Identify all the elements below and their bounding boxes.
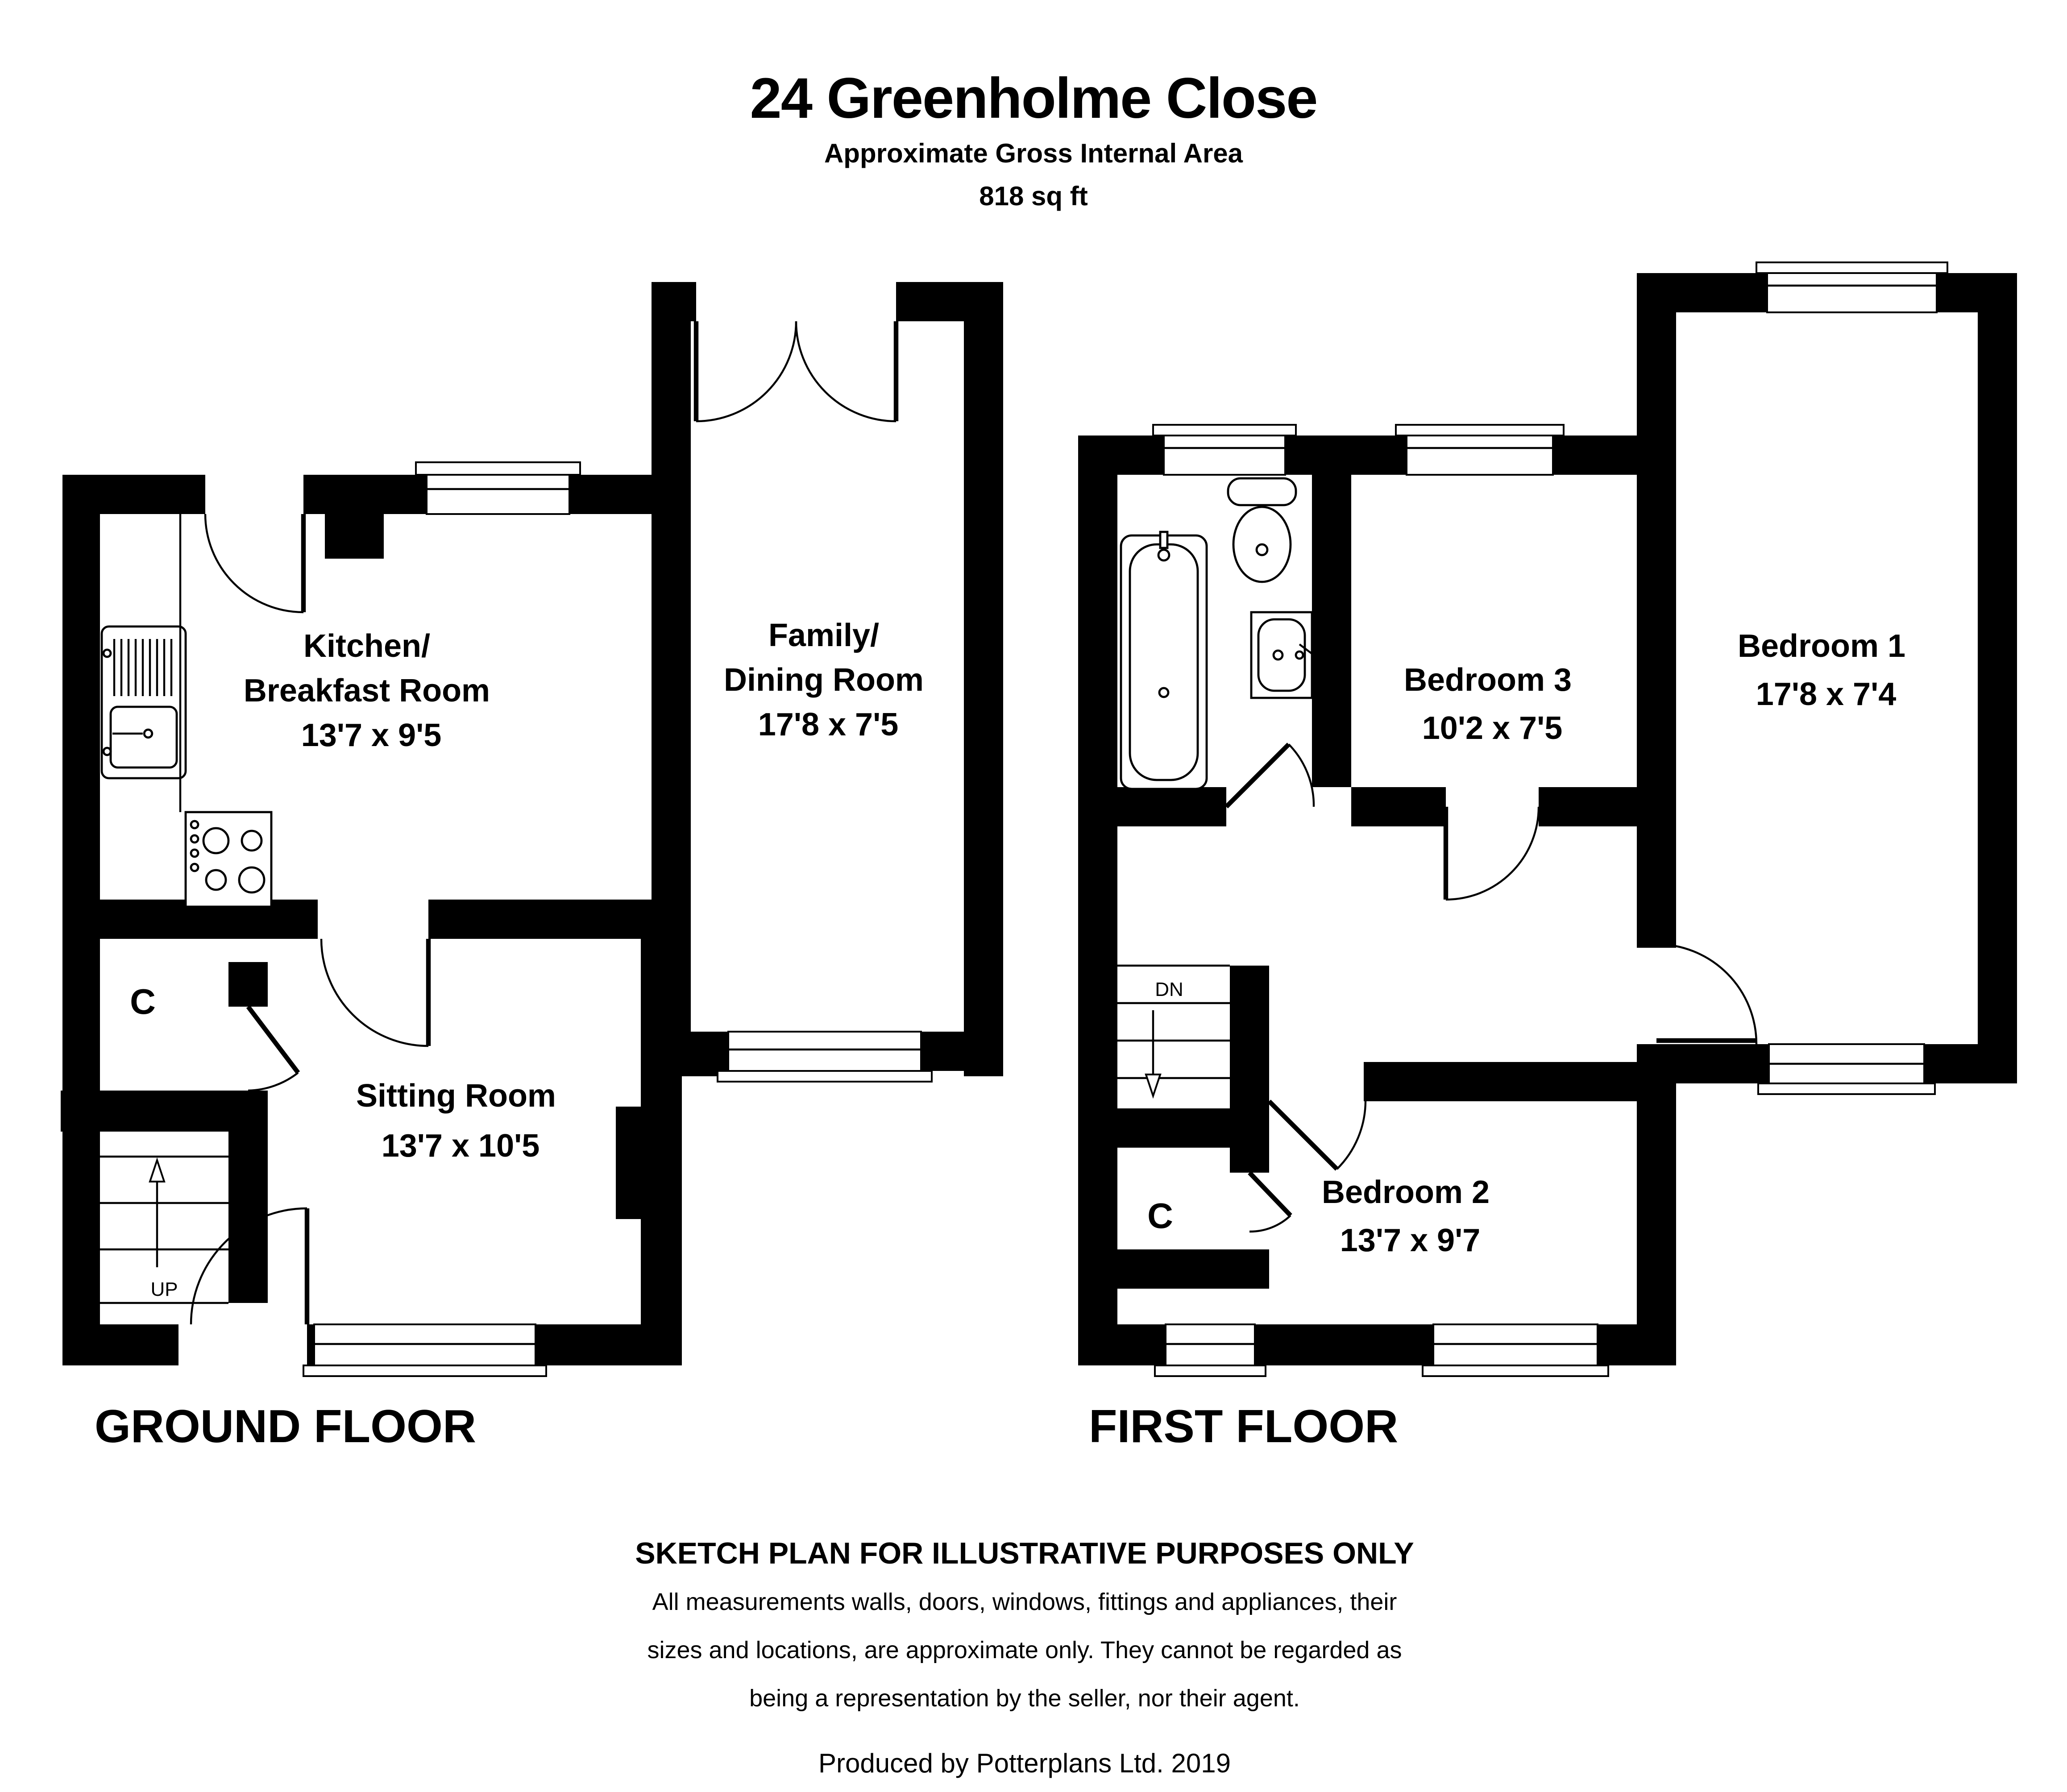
page-title: 24 Greenholme Close bbox=[750, 66, 1317, 130]
disclaimer-line3: being a representation by the seller, no… bbox=[749, 1685, 1300, 1712]
area-value: 818 sq ft bbox=[979, 181, 1087, 211]
bedroom1-door bbox=[1656, 944, 1756, 1044]
ground-floor-label: GROUND FLOOR bbox=[95, 1401, 476, 1452]
disclaimer-line1: All measurements walls, doors, windows, … bbox=[652, 1589, 1397, 1615]
page-subtitle: Approximate Gross Internal Area bbox=[824, 138, 1243, 168]
sitting-room-label: Sitting Room 13'7 x 10'5 bbox=[356, 1078, 565, 1164]
ground-closet-label: C bbox=[130, 982, 156, 1021]
bedroom3-window bbox=[1396, 425, 1564, 475]
first-floor-label: FIRST FLOOR bbox=[1089, 1401, 1398, 1452]
stairs-up: UP bbox=[100, 1157, 228, 1303]
bedroom2-left-window bbox=[1155, 1324, 1266, 1376]
bedroom1-bottom-window bbox=[1758, 1044, 1935, 1094]
disclaimer-title: SKETCH PLAN FOR ILLUSTRATIVE PURPOSES ON… bbox=[635, 1536, 1414, 1570]
stairs-down: DN bbox=[1117, 966, 1230, 1096]
chimney-breast bbox=[616, 1107, 641, 1219]
disclaimer-line2: sizes and locations, are approximate onl… bbox=[647, 1637, 1402, 1663]
bedroom3-door bbox=[1446, 807, 1539, 900]
bathroom-window bbox=[1153, 425, 1296, 475]
header: 24 Greenholme Close Approximate Gross In… bbox=[750, 66, 1317, 211]
stairs-up-label: UP bbox=[150, 1278, 178, 1300]
first-floor-plan: DN Bedroom 3 10'2 x 7'5 Bedro bbox=[1078, 262, 2017, 1452]
credit-line: Produced by Potterplans Ltd. 2019 bbox=[818, 1748, 1231, 1778]
bedroom1-top-window bbox=[1756, 262, 1947, 312]
basin-symbol bbox=[1251, 612, 1314, 698]
ground-floor-plan: UP bbox=[61, 282, 1003, 1452]
bathroom-door bbox=[1226, 744, 1314, 807]
dining-room-window bbox=[718, 1032, 932, 1082]
bedroom2-label: Bedroom 2 13'7 x 9'7 bbox=[1322, 1174, 1498, 1258]
up-arrow-icon bbox=[150, 1160, 164, 1182]
bedroom2-right-window bbox=[1423, 1324, 1608, 1376]
kitchen-sitting-door bbox=[321, 939, 428, 1046]
kitchen-sink-symbol bbox=[102, 626, 186, 778]
kitchen-label: Kitchen/ Breakfast Room 13'7 x 9'5 bbox=[244, 628, 499, 753]
footer: SKETCH PLAN FOR ILLUSTRATIVE PURPOSES ON… bbox=[635, 1536, 1414, 1778]
floorplan-page: 24 Greenholme Close Approximate Gross In… bbox=[0, 0, 2067, 1792]
bedroom1-label: Bedroom 1 17'8 x 7'4 bbox=[1738, 628, 1914, 712]
french-doors bbox=[696, 321, 896, 421]
kitchen-door bbox=[205, 514, 303, 612]
first-closet-label: C bbox=[1147, 1196, 1173, 1236]
toilet-symbol bbox=[1228, 478, 1296, 582]
dining-label: Family/ Dining Room 17'8 x 7'5 bbox=[724, 618, 933, 743]
ground-closet-door bbox=[248, 1007, 298, 1091]
bathtub-symbol bbox=[1121, 532, 1207, 789]
kitchen-window bbox=[416, 462, 580, 514]
down-arrow-icon bbox=[1146, 1074, 1160, 1096]
sitting-room-window bbox=[303, 1324, 546, 1376]
stairs-down-label: DN bbox=[1155, 979, 1183, 1000]
bedroom2-door bbox=[1269, 1101, 1366, 1169]
first-closet-door bbox=[1249, 1173, 1291, 1232]
bedroom3-label: Bedroom 3 10'2 x 7'5 bbox=[1404, 662, 1581, 746]
stove-symbol bbox=[186, 812, 271, 907]
